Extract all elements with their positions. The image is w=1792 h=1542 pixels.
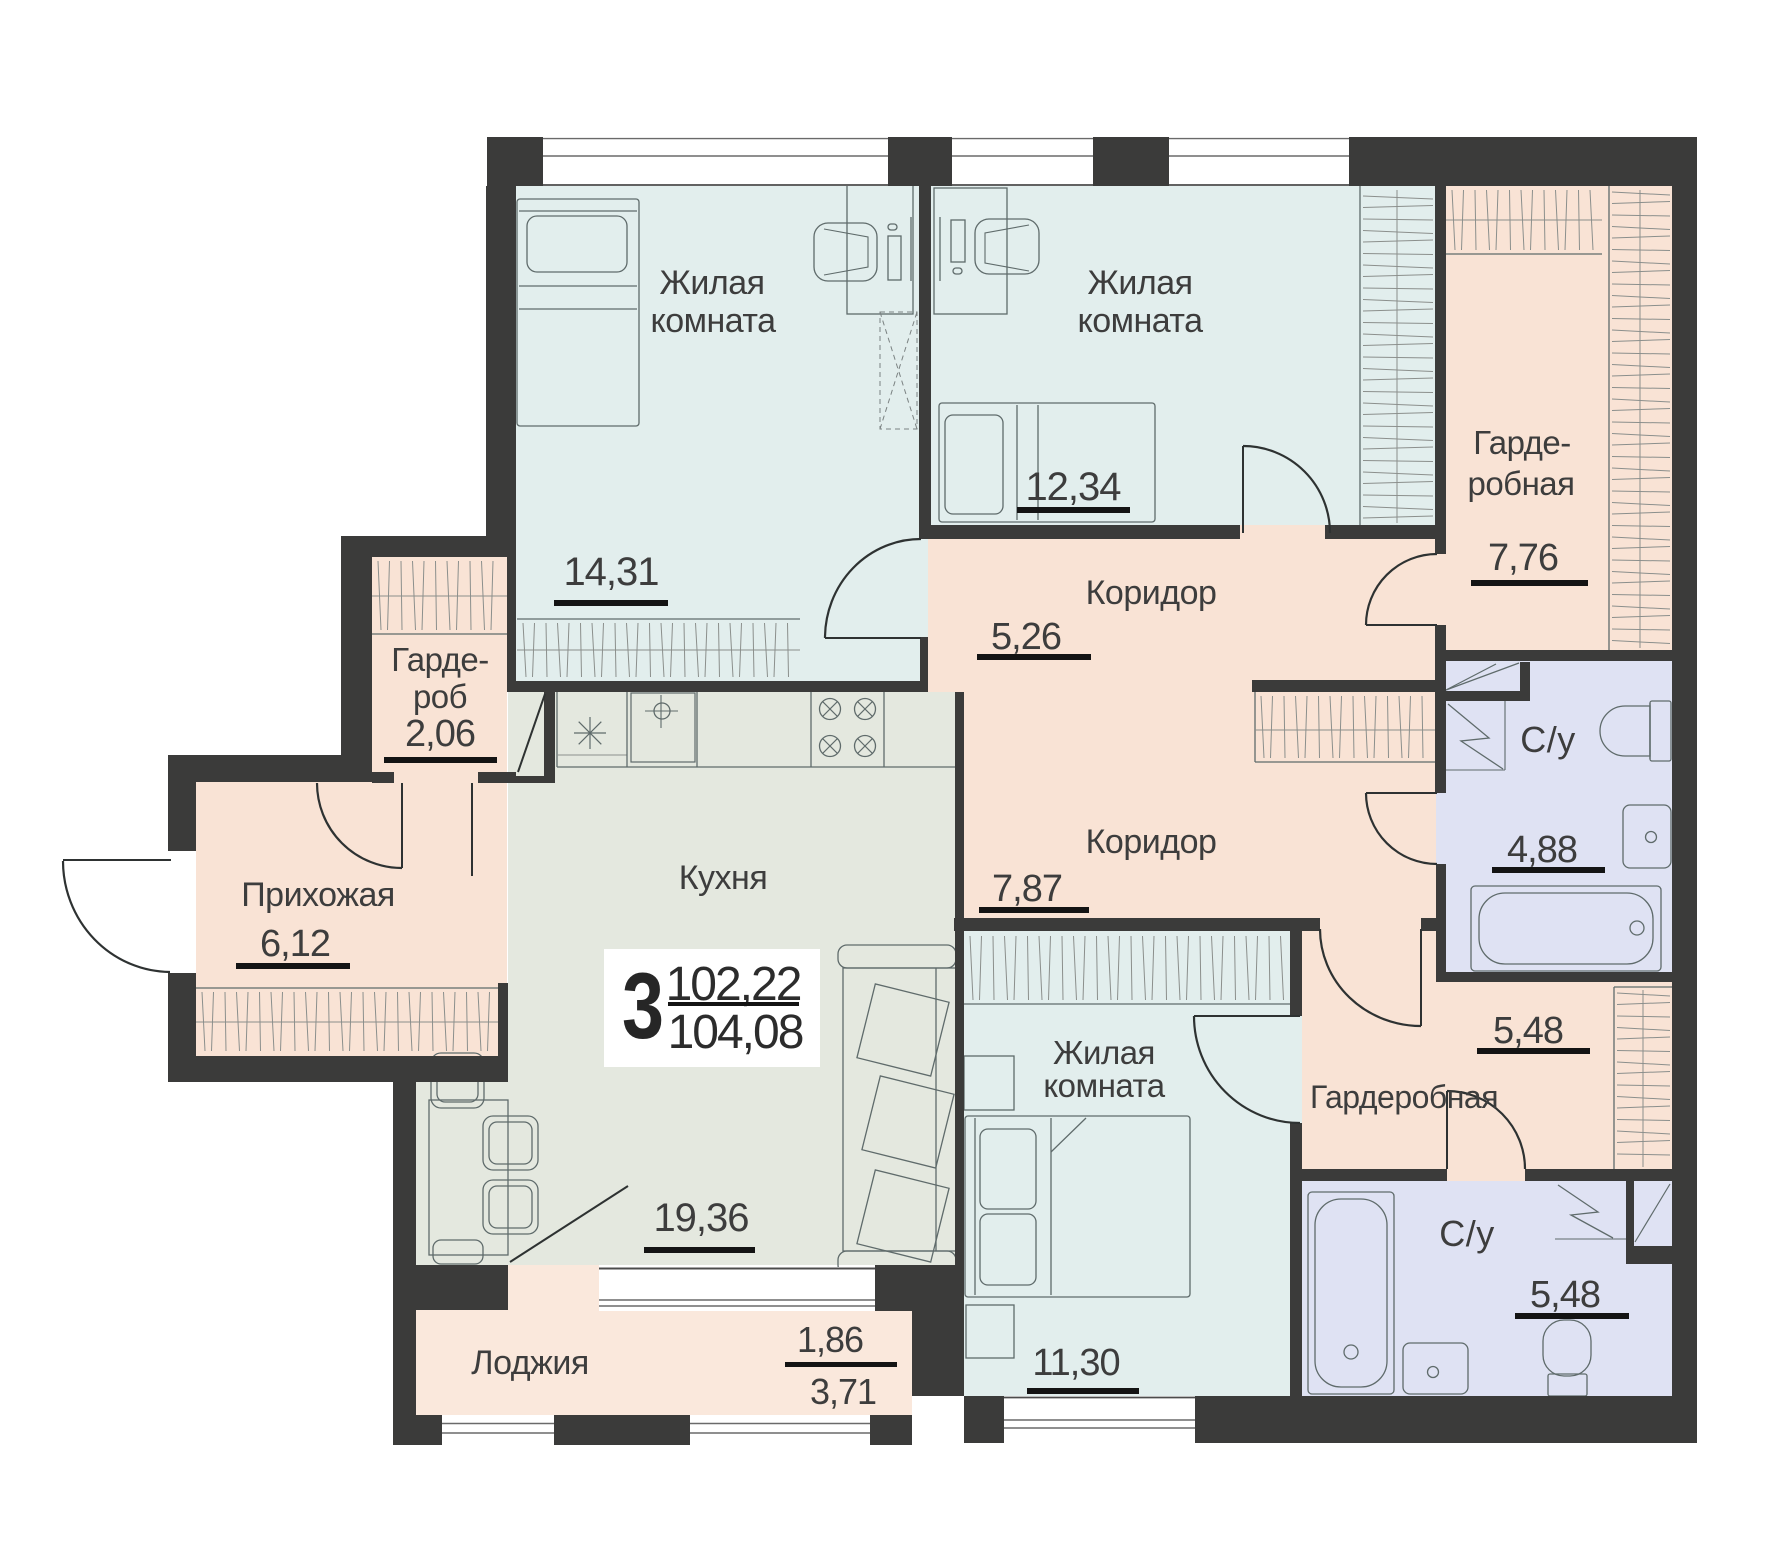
svg-text:1,86: 1,86 xyxy=(797,1319,863,1360)
svg-text:роб: роб xyxy=(413,678,467,715)
svg-text:комната: комната xyxy=(1043,1067,1165,1104)
svg-text:Гардеробная: Гардеробная xyxy=(1310,1079,1498,1115)
svg-text:Гарде-: Гарде- xyxy=(1473,424,1571,461)
svg-text:Лоджия: Лоджия xyxy=(471,1344,588,1382)
svg-text:2,06: 2,06 xyxy=(405,713,475,755)
svg-text:С/у: С/у xyxy=(1520,719,1576,760)
svg-text:Жилая: Жилая xyxy=(659,264,764,302)
svg-text:робная: робная xyxy=(1467,465,1574,502)
svg-text:19,36: 19,36 xyxy=(653,1196,748,1240)
svg-text:7,76: 7,76 xyxy=(1488,537,1558,579)
svg-text:Коридор: Коридор xyxy=(1086,574,1217,612)
svg-text:7,87: 7,87 xyxy=(992,868,1062,910)
svg-text:4,88: 4,88 xyxy=(1507,829,1577,871)
svg-text:5,26: 5,26 xyxy=(991,616,1061,658)
svg-text:Прихожая: Прихожая xyxy=(241,876,395,914)
svg-text:Кухня: Кухня xyxy=(679,859,768,897)
svg-text:3,71: 3,71 xyxy=(810,1371,876,1412)
svg-text:11,30: 11,30 xyxy=(1032,1342,1119,1384)
svg-text:14,31: 14,31 xyxy=(563,550,658,594)
svg-text:6,12: 6,12 xyxy=(260,923,330,965)
svg-text:Коридор: Коридор xyxy=(1086,823,1217,861)
svg-text:комната: комната xyxy=(650,302,776,340)
svg-text:12,34: 12,34 xyxy=(1025,465,1121,509)
svg-text:комната: комната xyxy=(1077,302,1203,340)
svg-text:5,48: 5,48 xyxy=(1493,1010,1563,1052)
svg-text:Гарде-: Гарде- xyxy=(391,641,489,678)
svg-text:104,08: 104,08 xyxy=(668,1006,803,1059)
svg-text:С/у: С/у xyxy=(1439,1213,1495,1254)
svg-text:3: 3 xyxy=(622,953,664,1058)
svg-text:Жилая: Жилая xyxy=(1087,264,1192,302)
svg-text:Жилая: Жилая xyxy=(1053,1034,1155,1071)
svg-text:5,48: 5,48 xyxy=(1530,1274,1600,1316)
